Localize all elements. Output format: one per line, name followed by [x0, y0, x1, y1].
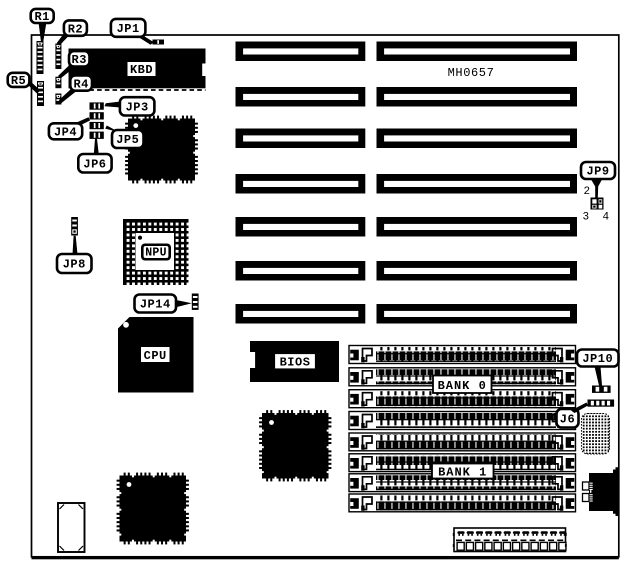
- svg-text:R2: R2: [68, 22, 83, 36]
- svg-text:JP8: JP8: [63, 258, 86, 272]
- svg-text:KBD: KBD: [130, 63, 153, 77]
- svg-text:R3: R3: [72, 53, 87, 67]
- svg-text:CPU: CPU: [144, 349, 167, 363]
- svg-text:JP10: JP10: [582, 352, 613, 366]
- svg-text:JP1: JP1: [117, 22, 140, 36]
- svg-text:BANK 0: BANK 0: [438, 379, 487, 393]
- svg-text:JP4: JP4: [54, 126, 77, 140]
- svg-text:JP9: JP9: [586, 165, 609, 179]
- svg-text:JP3: JP3: [126, 101, 149, 115]
- svg-text:BANK 1: BANK 1: [438, 465, 487, 479]
- svg-text:3: 3: [582, 212, 589, 224]
- svg-text:2: 2: [583, 186, 590, 198]
- svg-text:R1: R1: [34, 10, 49, 24]
- svg-text:4: 4: [602, 212, 609, 224]
- svg-text:R4: R4: [73, 77, 88, 91]
- svg-text:BIOS: BIOS: [280, 355, 311, 369]
- svg-text:R5: R5: [11, 74, 26, 88]
- svg-text:JP6: JP6: [83, 157, 106, 171]
- svg-text:NPU: NPU: [145, 247, 167, 260]
- svg-text:JP5: JP5: [116, 133, 139, 147]
- svg-text:MH0657: MH0657: [448, 66, 495, 80]
- svg-text:J6: J6: [560, 412, 575, 426]
- svg-text:JP14: JP14: [140, 298, 171, 312]
